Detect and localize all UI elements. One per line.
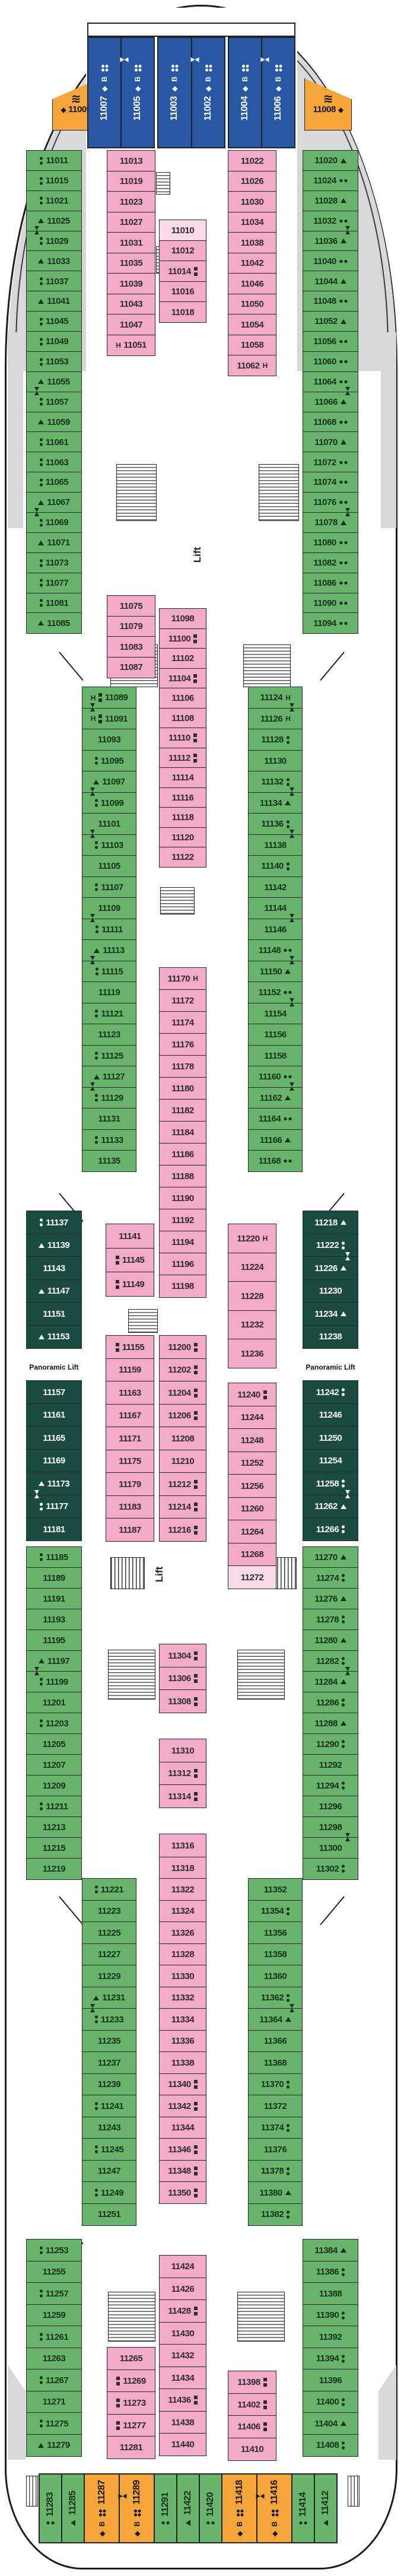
cabin-11220[interactable]: 11220H — [228, 1224, 276, 1253]
cabin-11181[interactable]: 11181 — [26, 1517, 82, 1541]
cabin-11024[interactable]: 11024 — [303, 170, 358, 191]
cabin-11247[interactable]: 11247 — [82, 2160, 136, 2183]
cabin-11042[interactable]: 11042 — [228, 253, 276, 274]
cabin-11302[interactable]: 11302 — [303, 1858, 358, 1880]
cabin-11408[interactable]: 11408 — [303, 2434, 358, 2457]
cabin-11310[interactable]: 11310 — [159, 1739, 206, 1762]
cabin-11290[interactable]: 11290 — [303, 1733, 358, 1755]
cabin-11053[interactable]: 11053 — [26, 351, 82, 372]
cabin-11274[interactable]: 11274 — [303, 1567, 358, 1589]
cabin-11023[interactable]: 11023 — [107, 191, 155, 212]
cabin-11081[interactable]: 11081 — [26, 593, 82, 614]
cabin-11289[interactable]: ◆B11289 — [119, 2473, 155, 2543]
cabin-11440[interactable]: 11440 — [159, 2433, 206, 2456]
cabin-11244[interactable]: 11244 — [228, 1406, 276, 1430]
cabin-11169[interactable]: 11169 — [26, 1449, 82, 1473]
cabin-11038[interactable]: 11038 — [228, 232, 276, 253]
cabin-11052[interactable]: 11052 — [303, 311, 358, 332]
stairs[interactable] — [26, 2476, 38, 2507]
cabin-11100[interactable]: 11100 — [159, 628, 206, 649]
cabin-11294[interactable]: 11294 — [303, 1775, 358, 1797]
cabin-11194[interactable]: 11194 — [159, 1231, 206, 1254]
cabin-11210[interactable]: 11210 — [159, 1450, 206, 1473]
cabin-11097[interactable]: 11097 — [82, 771, 136, 793]
cabin-11136[interactable]: 11136 — [248, 813, 303, 835]
cabin-11158[interactable]: 11158 — [248, 1045, 303, 1067]
cabin-11422[interactable]: 11422 — [176, 2473, 200, 2543]
cabin-11130[interactable]: 11130 — [248, 750, 303, 772]
cabin-11076[interactable]: 11076 — [303, 492, 358, 513]
cabin-11074[interactable]: 11074 — [303, 472, 358, 493]
cabin-11133[interactable]: 11133 — [82, 1129, 136, 1151]
cabin-11246[interactable]: 11246 — [303, 1403, 358, 1427]
cabin-11163[interactable]: 11163 — [106, 1381, 154, 1405]
cabin-11135[interactable]: 11135 — [82, 1150, 136, 1172]
cabin-11123[interactable]: 11123 — [82, 1024, 136, 1046]
cabin-11218[interactable]: 11218 — [303, 1211, 358, 1234]
cabin-11374[interactable]: 11374 — [248, 2117, 303, 2139]
cabin-11109[interactable]: 11109 — [82, 897, 136, 919]
cabin-11160[interactable]: 11160 — [248, 1066, 303, 1088]
cabin-11011[interactable]: 11011 — [26, 150, 82, 171]
cabin-11183[interactable]: 11183 — [106, 1495, 154, 1519]
cabin-11059[interactable]: 11059 — [26, 412, 82, 433]
cabin-11378[interactable]: 11378 — [248, 2160, 303, 2183]
cabin-11258[interactable]: 11258 — [303, 1472, 358, 1495]
cabin-11108[interactable]: 11108 — [159, 708, 206, 729]
cabin-11025[interactable]: 11025 — [26, 211, 82, 231]
cabin-11248[interactable]: 11248 — [228, 1428, 276, 1452]
cabin-11282[interactable]: 11282 — [303, 1650, 358, 1672]
cabin-11063[interactable]: 11063 — [26, 452, 82, 472]
cabin-11149[interactable]: 11149 — [106, 1272, 154, 1297]
cabin-11216[interactable]: 11216 — [159, 1518, 206, 1542]
cabin-11008[interactable]: ≋ 11008◆ — [304, 78, 352, 131]
cabin-11360[interactable]: 11360 — [248, 1965, 303, 1987]
cabin-11026[interactable]: 11026 — [228, 171, 276, 192]
cabin-11348[interactable]: 11348 — [159, 2160, 206, 2183]
cabin-11075[interactable]: 11075 — [107, 595, 155, 617]
cabin-11050[interactable]: 11050 — [228, 294, 276, 315]
cabin-11386[interactable]: 11386 — [303, 2261, 358, 2283]
cabin-11182[interactable]: 11182 — [159, 1099, 206, 1122]
cabin-11328[interactable]: 11328 — [159, 1943, 206, 1966]
stairs[interactable] — [237, 2292, 285, 2342]
cabin-11184[interactable]: 11184 — [159, 1121, 206, 1144]
cabin-11396[interactable]: 11396 — [303, 2369, 358, 2391]
cabin-11376[interactable]: 11376 — [248, 2138, 303, 2161]
cabin-11101[interactable]: 11101 — [82, 813, 136, 835]
cabin-11261[interactable]: 11261 — [26, 2326, 82, 2348]
cabin-11380[interactable]: 11380 — [248, 2181, 303, 2204]
cabin-11012[interactable]: 11012 — [159, 240, 206, 262]
stairs[interactable] — [259, 464, 299, 521]
panoramic-lift-right[interactable]: Panoramic Lift — [303, 1354, 358, 1380]
cabin-11073[interactable]: 11073 — [26, 552, 82, 573]
cabin-11334[interactable]: 11334 — [159, 2008, 206, 2031]
cabin-11179[interactable]: 11179 — [106, 1472, 154, 1496]
cabin-11039[interactable]: 11039 — [107, 273, 155, 294]
cabin-11270[interactable]: 11270 — [303, 1546, 358, 1568]
panoramic-lift-left[interactable]: Panoramic Lift — [26, 1354, 82, 1380]
cabin-11095[interactable]: 11095 — [82, 750, 136, 772]
cabin-11018[interactable]: 11018 — [159, 301, 206, 323]
cabin-11346[interactable]: 11346 — [159, 2138, 206, 2161]
cabin-11280[interactable]: 11280 — [303, 1630, 358, 1651]
cabin-11167[interactable]: 11167 — [106, 1404, 154, 1428]
cabin-11022[interactable]: 11022 — [228, 150, 276, 171]
cabin-11388[interactable]: 11388 — [303, 2282, 358, 2305]
cabin-11175[interactable]: 11175 — [106, 1450, 154, 1473]
cabin-11314[interactable]: 11314 — [159, 1784, 206, 1808]
cabin-11384[interactable]: 11384 — [303, 2239, 358, 2261]
cabin-11404[interactable]: 11404 — [303, 2412, 358, 2435]
cabin-11414[interactable]: 11414 — [291, 2473, 315, 2543]
cabin-11428[interactable]: 11428 — [159, 2299, 206, 2323]
cabin-11201[interactable]: 11201 — [26, 1692, 82, 1714]
cabin-11292[interactable]: 11292 — [303, 1754, 358, 1776]
stairs[interactable] — [348, 2476, 360, 2507]
cabin-11090[interactable]: 11090 — [303, 593, 358, 614]
cabin-11236[interactable]: 11236 — [228, 1339, 276, 1368]
cabin-11116[interactable]: 11116 — [159, 787, 206, 808]
cabin-11013[interactable]: 11013 — [107, 150, 155, 171]
cabin-11120[interactable]: 11120 — [159, 827, 206, 848]
stairs[interactable] — [128, 1309, 158, 1333]
cabin-11316[interactable]: 11316 — [159, 1834, 206, 1857]
cabin-11234[interactable]: 11234 — [303, 1302, 358, 1326]
cabin-11030[interactable]: 11030 — [228, 191, 276, 212]
cabin-11366[interactable]: 11366 — [248, 2030, 303, 2053]
cabin-11055[interactable]: 11055 — [26, 371, 82, 392]
cabin-11006[interactable]: 11006◆B — [261, 37, 295, 148]
cabin-11278[interactable]: 11278 — [303, 1609, 358, 1631]
cabin-11219[interactable]: 11219 — [26, 1858, 82, 1880]
cabin-11137[interactable]: 11137 — [26, 1211, 82, 1234]
cabin-11237[interactable]: 11237 — [82, 2051, 136, 2074]
cabin-11231[interactable]: 11231 — [82, 1987, 136, 2009]
cabin-11058[interactable]: 11058 — [228, 335, 276, 356]
cabin-11402[interactable]: 11402 — [228, 2393, 276, 2416]
cabin-11164[interactable]: 11164 — [248, 1108, 303, 1130]
cabin-11166[interactable]: 11166 — [248, 1129, 303, 1151]
cabin-11418[interactable]: ◆B11418 — [221, 2473, 257, 2543]
cabin-11265[interactable]: 11265 — [107, 2347, 155, 2370]
cabin-11196[interactable]: 11196 — [159, 1253, 206, 1276]
cabin-11412[interactable]: 11412 — [314, 2473, 338, 2543]
cabin-11200[interactable]: 11200 — [159, 1335, 206, 1359]
cabin-11107[interactable]: 11107 — [82, 876, 136, 898]
cabin-11222[interactable]: 11222 — [303, 1234, 358, 1257]
cabin-11430[interactable]: 11430 — [159, 2322, 206, 2345]
cabin-11227[interactable]: 11227 — [82, 1943, 136, 1966]
cabin-11049[interactable]: 11049 — [26, 331, 82, 352]
cabin-11235[interactable]: 11235 — [82, 2030, 136, 2053]
cabin-11372[interactable]: 11372 — [248, 2095, 303, 2117]
cabin-11287[interactable]: ◆B11287 — [84, 2473, 120, 2543]
cabin-11180[interactable]: 11180 — [159, 1077, 206, 1100]
cabin-11332[interactable]: 11332 — [159, 1987, 206, 2009]
cabin-11062[interactable]: 11062H — [228, 355, 276, 376]
lift-label-forward[interactable]: Lift — [181, 531, 214, 579]
cabin-11020[interactable]: 11020 — [303, 150, 358, 171]
cabin-11354[interactable]: 11354 — [248, 1900, 303, 1923]
cabin-11241[interactable]: 11241 — [82, 2095, 136, 2117]
cabin-11190[interactable]: 11190 — [159, 1187, 206, 1210]
cabin-11178[interactable]: 11178 — [159, 1055, 206, 1078]
cabin-11021[interactable]: 11021 — [26, 190, 82, 211]
cabin-11257[interactable]: 11257 — [26, 2282, 82, 2305]
cabin-11191[interactable]: 11191 — [26, 1588, 82, 1610]
cabin-11298[interactable]: 11298 — [303, 1816, 358, 1838]
cabin-11271[interactable]: 11271 — [26, 2391, 82, 2413]
cabin-11141[interactable]: 11141 — [106, 1224, 154, 1249]
cabin-11032[interactable]: 11032 — [303, 211, 358, 231]
cabin-11358[interactable]: 11358 — [248, 1943, 303, 1966]
cabin-11242[interactable]: 11242 — [303, 1380, 358, 1404]
cabin-11093[interactable]: 11093 — [82, 729, 136, 751]
cabin-11098[interactable]: 11098 — [159, 608, 206, 629]
cabin-11002[interactable]: 11002◆B — [191, 37, 225, 148]
cabin-11102[interactable]: 11102 — [159, 648, 206, 669]
cabin-11215[interactable]: 11215 — [26, 1837, 82, 1859]
cabin-11304[interactable]: 11304 — [159, 1644, 206, 1667]
cabin-11238[interactable]: 11238 — [303, 1325, 358, 1349]
cabin-11186[interactable]: 11186 — [159, 1143, 206, 1166]
cabin-11224[interactable]: 11224 — [228, 1253, 276, 1282]
cabin-11139[interactable]: 11139 — [26, 1234, 82, 1257]
cabin-11394[interactable]: 11394 — [303, 2348, 358, 2370]
cabin-11128[interactable]: 11128 — [248, 729, 303, 751]
cabin-11340[interactable]: 11340 — [159, 2073, 206, 2096]
cabin-11212[interactable]: 11212 — [159, 1472, 206, 1496]
stairs[interactable] — [108, 1650, 155, 1700]
cabin-11198[interactable]: 11198 — [159, 1275, 206, 1298]
cabin-11064[interactable]: 11064 — [303, 371, 358, 392]
cabin-11004[interactable]: 11004◆B — [228, 37, 262, 148]
cabin-11228[interactable]: 11228 — [228, 1281, 276, 1311]
cabin-11251[interactable]: 11251 — [82, 2203, 136, 2226]
cabin-11056[interactable]: 11056 — [303, 331, 358, 352]
cabin-11259[interactable]: 11259 — [26, 2304, 82, 2327]
lift-label-mid-left[interactable]: Lift — [147, 1555, 172, 1594]
cabin-11045[interactable]: 11045 — [26, 311, 82, 332]
cabin-11047[interactable]: 11047 — [107, 314, 155, 335]
cabin-11028[interactable]: 11028 — [303, 190, 358, 211]
cabin-11007[interactable]: 11007◆B — [87, 37, 122, 148]
cabin-11221[interactable]: 11221 — [82, 1878, 136, 1901]
cabin-11214[interactable]: 11214 — [159, 1495, 206, 1519]
cabin-11168[interactable]: 11168 — [248, 1150, 303, 1172]
cabin-11420[interactable]: 11420 — [199, 2473, 222, 2543]
cabin-11060[interactable]: 11060 — [303, 351, 358, 372]
cabin-11170[interactable]: 11170H — [159, 967, 206, 990]
cabin-11197[interactable]: 11197 — [26, 1650, 82, 1672]
cabin-11148[interactable]: 11148 — [248, 939, 303, 961]
cabin-11308[interactable]: 11308 — [159, 1689, 206, 1713]
cabin-11019[interactable]: 11019 — [107, 171, 155, 192]
cabin-11118[interactable]: 11118 — [159, 807, 206, 828]
cabin-11211[interactable]: 11211 — [26, 1796, 82, 1818]
cabin-11121[interactable]: 11121 — [82, 1003, 136, 1025]
cabin-11027[interactable]: 11027 — [107, 212, 155, 233]
cabin-11225[interactable]: 11225 — [82, 1921, 136, 1944]
cabin-11192[interactable]: 11192 — [159, 1209, 206, 1232]
cabin-11398[interactable]: 11398 — [228, 2371, 276, 2394]
cabin-11312[interactable]: 11312 — [159, 1762, 206, 1786]
cabin-11174[interactable]: 11174 — [159, 1011, 206, 1034]
stairs[interactable] — [116, 464, 157, 521]
cabin-11288[interactable]: 11288 — [303, 1713, 358, 1735]
cabin-11083[interactable]: 11083 — [107, 636, 155, 658]
cabin-11243[interactable]: 11243 — [82, 2117, 136, 2139]
cabin-11140[interactable]: 11140 — [248, 855, 303, 877]
cabin-11272[interactable]: 11272 — [228, 1565, 276, 1589]
cabin-11125[interactable]: 11125 — [82, 1045, 136, 1067]
cabin-11255[interactable]: 11255 — [26, 2261, 82, 2283]
cabin-11370[interactable]: 11370 — [248, 2073, 303, 2096]
cabin-11114[interactable]: 11114 — [159, 767, 206, 788]
cabin-11416[interactable]: ◆B11416 — [256, 2473, 292, 2543]
cabin-11132[interactable]: 11132 — [248, 771, 303, 793]
cabin-11054[interactable]: 11054 — [228, 314, 276, 335]
cabin-11086[interactable]: 11086 — [303, 573, 358, 593]
cabin-11077[interactable]: 11077 — [26, 573, 82, 593]
cabin-11306[interactable]: 11306 — [159, 1667, 206, 1691]
cabin-11094[interactable]: 11094 — [303, 612, 358, 633]
cabin-11035[interactable]: 11035 — [107, 253, 155, 274]
stairs[interactable] — [156, 172, 170, 195]
cabin-11144[interactable]: 11144 — [248, 897, 303, 919]
cabin-11342[interactable]: 11342 — [159, 2095, 206, 2117]
cabin-11350[interactable]: 11350 — [159, 2181, 206, 2204]
cabin-11269[interactable]: 11269 — [107, 2369, 155, 2393]
cabin-11112[interactable]: 11112 — [159, 748, 206, 768]
cabin-11204[interactable]: 11204 — [159, 1381, 206, 1405]
cabin-11079[interactable]: 11079 — [107, 616, 155, 637]
cabin-11127[interactable]: 11127 — [82, 1066, 136, 1088]
cabin-11161[interactable]: 11161 — [26, 1403, 82, 1427]
cabin-11043[interactable]: 11043 — [107, 294, 155, 315]
cabin-11085[interactable]: 11085 — [26, 612, 82, 633]
cabin-11362[interactable]: 11362 — [248, 1987, 303, 2009]
cabin-11014[interactable]: 11014 — [159, 261, 206, 282]
cabin-11406[interactable]: 11406 — [228, 2415, 276, 2438]
cabin-11041[interactable]: 11041 — [26, 291, 82, 312]
cabin-11147[interactable]: 11147 — [26, 1279, 82, 1303]
cabin-11187[interactable]: 11187 — [106, 1518, 154, 1542]
cabin-11322[interactable]: 11322 — [159, 1878, 206, 1901]
cabin-11324[interactable]: 11324 — [159, 1900, 206, 1923]
cabin-11185[interactable]: 11185 — [26, 1546, 82, 1568]
cabin-11105[interactable]: 11105 — [82, 855, 136, 877]
cabin-11110[interactable]: 11110 — [159, 728, 206, 748]
cabin-11048[interactable]: 11048 — [303, 291, 358, 312]
cabin-11206[interactable]: 11206 — [159, 1404, 206, 1428]
cabin-11279[interactable]: 11279 — [26, 2434, 82, 2457]
cabin-11209[interactable]: 11209 — [26, 1775, 82, 1797]
cabin-11368[interactable]: 11368 — [248, 2051, 303, 2074]
cabin-11330[interactable]: 11330 — [159, 1965, 206, 1987]
cabin-11156[interactable]: 11156 — [248, 1024, 303, 1046]
cabin-11071[interactable]: 11071 — [26, 532, 82, 553]
cabin-11245[interactable]: 11245 — [82, 2138, 136, 2161]
cabin-11005[interactable]: 11005◆B — [120, 37, 155, 148]
cabin-11207[interactable]: 11207 — [26, 1754, 82, 1776]
cabin-11070[interactable]: 11070 — [303, 431, 358, 452]
cabin-11061[interactable]: 11061 — [26, 431, 82, 452]
cabin-11202[interactable]: 11202 — [159, 1358, 206, 1382]
cabin-11080[interactable]: 11080 — [303, 532, 358, 553]
cabin-11003[interactable]: 11003◆B — [157, 37, 192, 148]
cabin-11275[interactable]: 11275 — [26, 2412, 82, 2435]
cabin-11382[interactable]: 11382 — [248, 2203, 303, 2226]
cabin-11249[interactable]: 11249 — [82, 2181, 136, 2204]
cabin-11031[interactable]: 11031 — [107, 232, 155, 253]
cabin-11263[interactable]: 11263 — [26, 2348, 82, 2370]
cabin-11113[interactable]: 11113 — [82, 939, 136, 961]
cabin-11286[interactable]: 11286 — [303, 1692, 358, 1714]
cabin-11122[interactable]: 11122 — [159, 847, 206, 868]
cabin-11264[interactable]: 11264 — [228, 1520, 276, 1543]
cabin-11344[interactable]: 11344 — [159, 2117, 206, 2139]
cabin-11260[interactable]: 11260 — [228, 1497, 276, 1521]
cabin-11087[interactable]: 11087 — [107, 657, 155, 678]
cabin-11046[interactable]: 11046 — [228, 273, 276, 294]
cabin-11283[interactable]: 11283 — [39, 2473, 62, 2543]
cabin-11267[interactable]: 11267 — [26, 2369, 82, 2391]
cabin-11188[interactable]: 11188 — [159, 1165, 206, 1188]
cabin-11285[interactable]: 11285 — [61, 2473, 85, 2543]
cabin-11044[interactable]: 11044 — [303, 271, 358, 291]
cabin-11015[interactable]: 11015 — [26, 170, 82, 191]
cabin-11142[interactable]: 11142 — [248, 876, 303, 898]
cabin-11195[interactable]: 11195 — [26, 1630, 82, 1651]
cabin-11356[interactable]: 11356 — [248, 1921, 303, 1944]
cabin-11193[interactable]: 11193 — [26, 1609, 82, 1631]
cabin-11410[interactable]: 11410 — [228, 2438, 276, 2461]
cabin-11106[interactable]: 11106 — [159, 688, 206, 709]
cabin-11239[interactable]: 11239 — [82, 2073, 136, 2096]
cabin-11256[interactable]: 11256 — [228, 1474, 276, 1498]
cabin-11296[interactable]: 11296 — [303, 1796, 358, 1818]
cabin-11232[interactable]: 11232 — [228, 1310, 276, 1340]
cabin-11067[interactable]: 11067 — [26, 492, 82, 513]
cabin-11277[interactable]: 11277 — [107, 2414, 155, 2437]
cabin-11016[interactable]: 11016 — [159, 281, 206, 303]
cabin-11104[interactable]: 11104 — [159, 668, 206, 689]
cabin-11034[interactable]: 11034 — [228, 212, 276, 233]
cabin-11072[interactable]: 11072 — [303, 452, 358, 472]
cabin-11438[interactable]: 11438 — [159, 2411, 206, 2434]
cabin-11229[interactable]: 11229 — [82, 1965, 136, 1987]
cabin-11434[interactable]: 11434 — [159, 2367, 206, 2390]
cabin-11253[interactable]: 11253 — [26, 2239, 82, 2261]
cabin-11065[interactable]: 11065 — [26, 472, 82, 493]
cabin-11203[interactable]: 11203 — [26, 1713, 82, 1735]
cabin-11276[interactable]: 11276 — [303, 1588, 358, 1610]
cabin-11400[interactable]: 11400 — [303, 2391, 358, 2413]
cabin-11281[interactable]: 11281 — [107, 2436, 155, 2459]
cabin-11213[interactable]: 11213 — [26, 1816, 82, 1838]
cabin-11037[interactable]: 11037 — [26, 271, 82, 291]
cabin-11040[interactable]: 11040 — [303, 250, 358, 271]
cabin-11268[interactable]: 11268 — [228, 1543, 276, 1567]
cabin-11436[interactable]: 11436 — [159, 2388, 206, 2412]
stairs[interactable] — [237, 1650, 285, 1700]
cabin-11171[interactable]: 11171 — [106, 1427, 154, 1450]
cabin-11082[interactable]: 11082 — [303, 552, 358, 573]
